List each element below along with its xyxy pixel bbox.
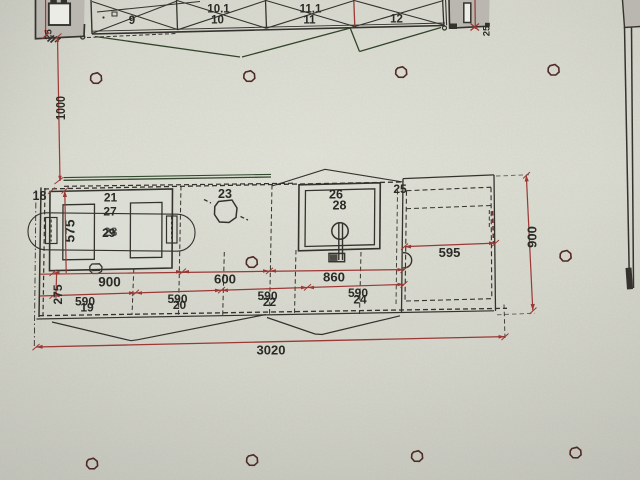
svg-text:25: 25 (393, 182, 407, 196)
svg-text:11: 11 (303, 15, 316, 27)
svg-text:3020: 3020 (257, 342, 286, 357)
svg-text:21: 21 (104, 190, 118, 204)
svg-text:1000: 1000 (53, 96, 68, 120)
svg-text:23: 23 (218, 187, 232, 201)
svg-text:275: 275 (51, 284, 65, 304)
svg-text:25: 25 (44, 29, 55, 40)
svg-text:860: 860 (323, 270, 345, 285)
svg-text:28: 28 (333, 198, 347, 212)
svg-text:28: 28 (104, 225, 118, 239)
svg-text:18: 18 (33, 189, 47, 203)
svg-text:20: 20 (173, 298, 187, 312)
svg-text:19: 19 (80, 301, 94, 315)
svg-text:595: 595 (439, 245, 461, 260)
svg-text:22: 22 (263, 295, 277, 309)
svg-text:900: 900 (98, 275, 121, 290)
svg-text:24: 24 (353, 292, 367, 306)
svg-text:12: 12 (390, 14, 403, 26)
svg-text:600: 600 (214, 271, 236, 286)
svg-text:10: 10 (211, 15, 224, 27)
svg-text:9: 9 (129, 15, 135, 27)
svg-text:25: 25 (482, 25, 493, 36)
svg-text:900: 900 (525, 226, 540, 248)
svg-text:27: 27 (103, 205, 117, 219)
